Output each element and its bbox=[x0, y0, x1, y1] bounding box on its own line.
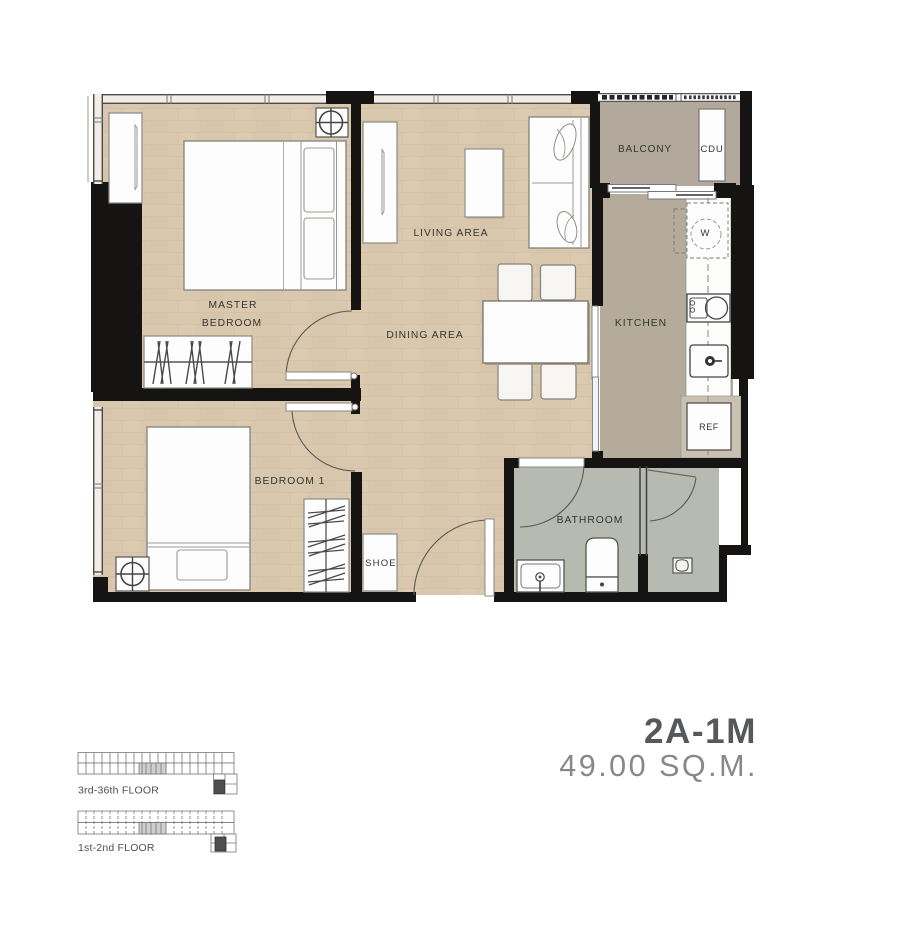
svg-text:BEDROOM 1: BEDROOM 1 bbox=[255, 476, 326, 487]
svg-text:SHOE: SHOE bbox=[365, 558, 397, 569]
svg-text:BALCONY: BALCONY bbox=[618, 144, 672, 155]
svg-text:49.00 SQ.M.: 49.00 SQ.M. bbox=[559, 749, 758, 783]
svg-text:DINING AREA: DINING AREA bbox=[386, 330, 463, 341]
svg-text:LIVING AREA: LIVING AREA bbox=[413, 228, 488, 239]
svg-text:REF: REF bbox=[699, 422, 719, 432]
svg-text:CDU: CDU bbox=[701, 144, 724, 155]
svg-text:1st-2nd FLOOR: 1st-2nd FLOOR bbox=[78, 842, 155, 854]
svg-text:3rd-36th FLOOR: 3rd-36th FLOOR bbox=[78, 785, 159, 797]
svg-text:W: W bbox=[701, 228, 710, 239]
svg-text:MASTER: MASTER bbox=[209, 300, 258, 311]
svg-text:BEDROOM: BEDROOM bbox=[202, 318, 262, 329]
svg-text:BATHROOM: BATHROOM bbox=[557, 515, 624, 526]
svg-text:2A-1M: 2A-1M bbox=[644, 712, 757, 751]
svg-text:KITCHEN: KITCHEN bbox=[615, 318, 667, 329]
